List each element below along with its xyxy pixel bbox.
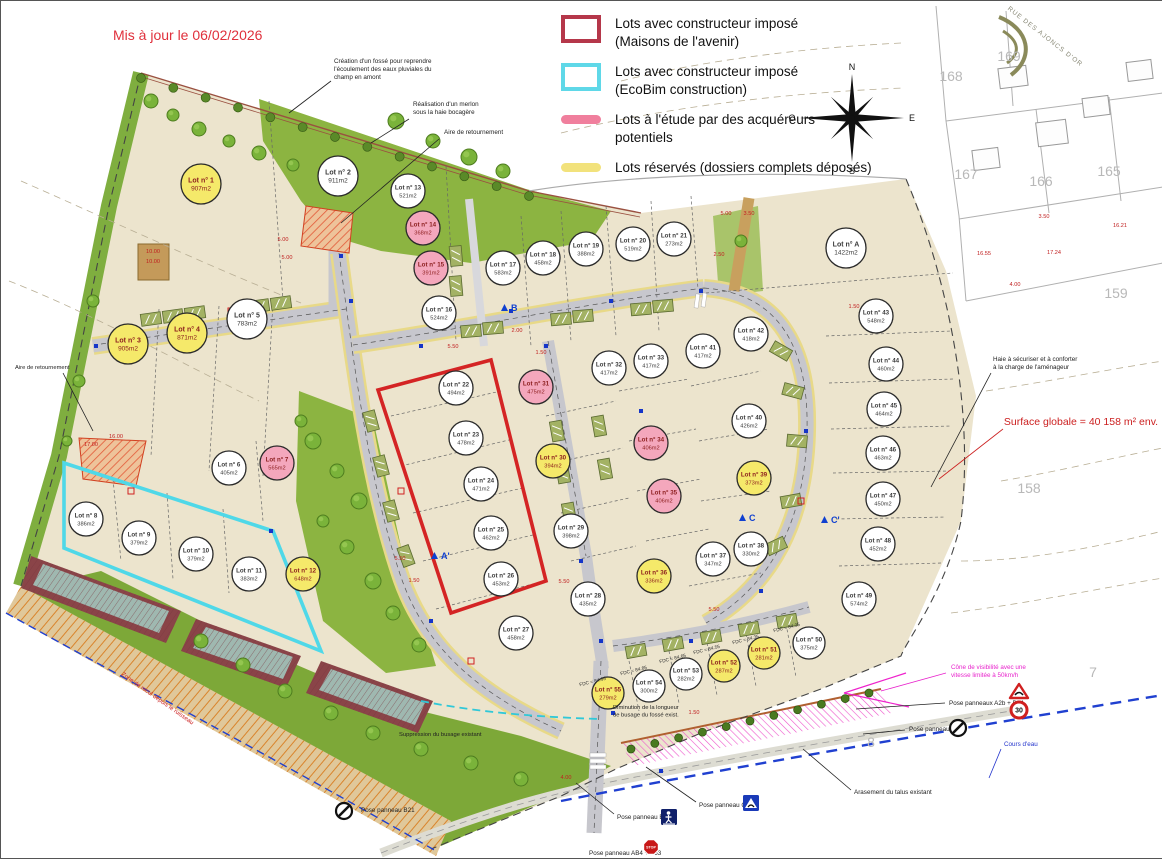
lot-marker: Lot n° 11383m2 [232,557,266,591]
svg-text:Cours d'eau: Cours d'eau [1004,741,1038,748]
hedge-dot [722,723,730,731]
svg-text:583m2: 583m2 [494,271,511,277]
tree [388,113,404,129]
lot-marker: Lot n° 35406m2 [647,479,681,513]
svg-text:426m2: 426m2 [740,424,757,430]
lot-marker: Lot n° 42418m2 [734,317,768,351]
svg-text:Lot n° 7: Lot n° 7 [266,457,289,464]
utility-marker [419,344,423,348]
hedge-dot [331,133,340,142]
svg-text:Lot n° 38: Lot n° 38 [738,543,765,550]
lot-marker: Lot n° 29398m2 [554,514,588,548]
dimension-label: 17.24 [1047,250,1061,256]
tree [252,146,266,160]
triangle-warning-sign-icon [1010,684,1028,698]
parcel-number: 8 [867,734,875,750]
legend-label: Lots à l'étude par des acquéreurs [615,112,815,127]
tree [324,706,338,720]
svg-text:Lot n° 50: Lot n° 50 [796,637,823,644]
lot-marker: Lot n° 39373m2 [737,461,771,495]
parcel-number: 7 [1089,664,1097,680]
hedge-dot [266,113,275,122]
legend-item-maisons-avenir: Lots avec constructeur imposé(Maisons de… [561,15,921,50]
svg-text:Lot n° 30: Lot n° 30 [540,455,567,462]
annotation: Suppression du busage existant [399,732,482,738]
lot-marker: Lot n° 1907m2 [181,164,221,204]
hedge-dot [698,728,706,736]
lot-marker: Lot n° 52287m2 [708,650,740,682]
no-entry-sign-icon [950,720,966,736]
utility-marker [269,529,273,533]
svg-text:Lot n° 36: Lot n° 36 [641,570,668,577]
svg-text:Lot n° 21: Lot n° 21 [661,233,688,240]
svg-text:648m2: 648m2 [294,577,311,583]
no-entry-sign-icon [336,803,352,819]
svg-text:Haie à sécuriser et à conforte: Haie à sécuriser et à conforter [993,356,1077,363]
lot-marker: Lot n° 4871m2 [167,313,207,353]
lot-marker: Lot n° 51281m2 [748,637,780,669]
utility-marker [759,589,763,593]
tree [414,742,428,756]
svg-text:Réalisation d'un merlon: Réalisation d'un merlon [413,101,479,108]
utility-marker [339,254,343,258]
svg-text:273m2: 273m2 [665,242,682,248]
svg-text:Lot n° 27: Lot n° 27 [503,627,530,634]
tree [194,634,208,648]
hedge-dot [298,123,307,132]
svg-text:Création d'un fossé pour repre: Création d'un fossé pour reprendre [334,58,432,65]
hedge-dot [460,172,469,181]
utility-marker [659,769,663,773]
svg-text:Lot n° A: Lot n° A [833,241,860,249]
annotation: Cône de visibilité avec unevitesse limit… [881,664,1026,691]
svg-text:417m2: 417m2 [694,354,711,360]
dimension-label: 5.00 [721,211,732,217]
utility-marker [689,639,693,643]
utility-marker [579,559,583,563]
legend-label: Lots avec constructeur imposé [615,16,798,31]
svg-text:l'écoulement des eaux pluviale: l'écoulement des eaux pluviales du [334,66,432,73]
svg-text:405m2: 405m2 [220,471,237,477]
dimension-label: 1.50 [409,578,420,584]
parking-bay [483,321,504,335]
svg-text:Lot n° 17: Lot n° 17 [490,262,517,269]
svg-text:Lot n° 31: Lot n° 31 [523,381,550,388]
hedge-dot [363,142,372,151]
lot-marker: Lot n° 19388m2 [569,232,603,266]
svg-text:à la charge de l'aménageur: à la charge de l'aménageur [993,364,1069,371]
svg-text:Lot n° 55: Lot n° 55 [595,687,622,694]
svg-text:champ en amont: champ en amont [334,74,381,81]
hedge-dot [395,152,404,161]
svg-text:Lot n° 42: Lot n° 42 [738,328,765,335]
svg-text:871m2: 871m2 [177,335,197,342]
dimension-label: 5.50 [395,556,406,562]
speed-limit-sign-icon: 30 [1011,702,1027,718]
svg-text:478m2: 478m2 [457,441,474,447]
lot-marker: Lot n° 38330m2 [734,532,768,566]
svg-text:300m2: 300m2 [640,689,657,695]
parking-bay [551,312,572,326]
tree [295,415,307,427]
lot-marker: Lot n° 25462m2 [474,516,508,550]
svg-text:Lot n° 24: Lot n° 24 [468,478,495,485]
svg-text:Lot n° 9: Lot n° 9 [128,532,151,539]
svg-text:Lot n° 8: Lot n° 8 [75,513,98,520]
tree [62,436,72,446]
svg-text:Lot n° 10: Lot n° 10 [183,548,210,555]
svg-text:Lot n° 5: Lot n° 5 [234,312,260,320]
tree [412,638,426,652]
svg-text:905m2: 905m2 [118,346,138,353]
legend-item-ecobim: Lots avec constructeur imposé(EcoBim con… [561,63,921,98]
svg-text:373m2: 373m2 [745,481,762,487]
svg-text:460m2: 460m2 [877,367,894,373]
legend-swatch-cyan-outline [561,63,601,91]
lot-marker: Lot n° 14368m2 [406,211,440,245]
dimension-label: 5.50 [559,579,570,585]
hedge-dot [651,739,659,747]
svg-text:Lot n° 40: Lot n° 40 [736,415,763,422]
turning-area-north-hatch [301,206,353,253]
hedge-dot [234,103,243,112]
svg-text:Lot n° 49: Lot n° 49 [846,593,873,600]
tree [73,375,85,387]
svg-text:281m2: 281m2 [755,656,772,662]
svg-text:565m2: 565m2 [268,466,285,472]
svg-text:494m2: 494m2 [447,391,464,397]
svg-text:Pose panneau B21: Pose panneau B21 [361,807,415,814]
hedge-dot [627,745,635,753]
hedge-dot [525,192,534,201]
svg-text:Lot n° 52: Lot n° 52 [711,660,738,667]
hedge-dot [428,162,437,171]
lot-marker: Lot n° 47450m2 [866,482,900,516]
svg-text:Lot n° 43: Lot n° 43 [863,310,890,317]
svg-text:Lot n° 2: Lot n° 2 [325,169,351,177]
parking-bay [449,276,463,297]
dimension-label: 1.50 [689,710,700,716]
lot-marker: Lot n° 6405m2 [212,451,246,485]
cadastre [936,6,1162,301]
svg-text:375m2: 375m2 [800,646,817,652]
svg-text:Lot n° 1: Lot n° 1 [188,177,214,185]
svg-text:Lot n° 33: Lot n° 33 [638,355,665,362]
parking-bay [461,324,482,338]
svg-text:Lot n° 32: Lot n° 32 [596,362,623,369]
lot-marker: Lot n° 8386m2 [69,502,103,536]
svg-text:907m2: 907m2 [191,186,211,193]
utility-marker [639,409,643,413]
dimension-label: 10.00 [146,259,160,265]
svg-text:386m2: 386m2 [77,522,94,528]
hedge-dot [492,182,501,191]
svg-text:Lot n° 14: Lot n° 14 [410,222,437,229]
svg-text:Lot n° 11: Lot n° 11 [236,568,262,575]
svg-text:287m2: 287m2 [715,669,732,675]
dimension-label: 5.50 [709,607,720,613]
svg-text:Lot n° 20: Lot n° 20 [620,238,647,245]
dimension-label: 17.00 [84,442,98,448]
tree [236,658,250,672]
svg-text:548m2: 548m2 [867,319,884,325]
site-plan-canvas: Lot n° 1907m2Lot n° 2911m2Lot n° 3905m2L… [0,0,1162,859]
hedge-dot [746,717,754,725]
utility-marker [544,344,548,348]
svg-text:471m2: 471m2 [472,487,489,493]
hedge-dot [137,74,146,83]
lot-marker: Lot n° 34406m2 [634,426,668,460]
svg-text:Lot n° 37: Lot n° 37 [700,553,727,560]
dimension-label: 5.00 [282,255,293,261]
svg-text:417m2: 417m2 [642,364,659,370]
svg-text:475m2: 475m2 [527,390,544,396]
lot-marker: Lot n° 9379m2 [122,521,156,555]
svg-text:911m2: 911m2 [328,178,348,185]
lot-marker: Lot n° 32417m2 [592,351,626,385]
parcel-number: 167 [954,166,978,182]
svg-text:282m2: 282m2 [677,677,694,683]
legend-swatch-red-outline [561,15,601,43]
hedge-dot [169,83,178,92]
svg-text:Lot n° 34: Lot n° 34 [638,437,665,444]
svg-text:Lot n° 26: Lot n° 26 [488,573,515,580]
tree [223,135,235,147]
svg-text:383m2: 383m2 [240,577,257,583]
svg-text:Lot n° 16: Lot n° 16 [426,307,453,314]
parking-bay [270,296,291,311]
utility-marker [804,429,808,433]
lot-marker: Lot n° 17583m2 [486,251,520,285]
svg-text:Lot n° 13: Lot n° 13 [395,185,422,192]
svg-text:Lot n° 47: Lot n° 47 [870,493,897,500]
hedge-dot [794,706,802,714]
legend-label: Lots réservés (dossiers complets déposés… [615,160,872,175]
lot-marker: Lot n° 10379m2 [179,537,213,571]
lot-marker: Lot n° 48452m2 [861,527,895,561]
parking-bay [631,302,652,316]
lot-marker: Lot n° 23478m2 [449,421,483,455]
hedge-dot [817,700,825,708]
lot-marker: Lot n° 12648m2 [286,557,320,591]
parcel-number: 168 [939,68,963,84]
tree [167,109,179,121]
svg-text:Lot n° 29: Lot n° 29 [558,525,585,532]
svg-text:279m2: 279m2 [599,696,616,702]
dimension-label: 1.50 [849,304,860,310]
annotation: Cours d'eau [989,741,1038,778]
lot-marker: Lot n° 22494m2 [439,371,473,405]
svg-text:Lot n° 3: Lot n° 3 [115,337,141,345]
lot-marker: Lot n° 20519m2 [616,227,650,261]
legend-label: Lots avec constructeur imposé [615,64,798,79]
svg-text:435m2: 435m2 [579,602,596,608]
dimension-label: 10.00 [146,249,160,255]
svg-text:Arasement du talus existant: Arasement du talus existant [854,789,932,796]
svg-text:450m2: 450m2 [874,502,891,508]
dimension-label: 2.00 [512,328,523,334]
parking-bay [573,309,594,323]
hedge-dot [770,711,778,719]
speed-hump-sign-icon [743,795,759,811]
svg-text:Lot n° 41: Lot n° 41 [690,345,717,352]
tree [192,122,206,136]
lot-marker: Lot n° 40426m2 [732,404,766,438]
lot-marker: Lot n° 21273m2 [657,222,691,256]
lot-marker: Lot n° 41417m2 [686,334,720,368]
annotation: Diminution de la longueurde busage du fo… [613,705,679,718]
lot-marker: Lot n° 16524m2 [422,296,456,330]
dimension-label: 2.50 [714,252,725,258]
svg-text:524m2: 524m2 [430,316,447,322]
svg-text:Lot n° 54: Lot n° 54 [636,680,663,687]
pedestrian-sign-icon [661,809,677,825]
hedge-dot [675,734,683,742]
legend-swatch-pink-blob [561,115,601,124]
lot-marker: Lot n° 24471m2 [464,467,498,501]
svg-text:Lot n° 53: Lot n° 53 [673,668,700,675]
updated-date: Mis à jour le 06/02/2026 [113,27,262,43]
svg-text:388m2: 388m2 [577,252,594,258]
svg-text:519m2: 519m2 [624,247,641,253]
svg-text:347m2: 347m2 [704,562,721,568]
svg-text:STOP: STOP [646,846,656,850]
dimension-label: 4.00 [561,775,572,781]
utility-marker [609,299,613,303]
svg-text:vitesse limitée à 50km/h: vitesse limitée à 50km/h [951,672,1019,679]
legend-item-etude: Lots à l'étude par des acquéreurspotenti… [561,111,921,146]
tree [496,164,510,178]
svg-text:Lot n° 48: Lot n° 48 [865,538,892,545]
svg-text:Lot n° 19: Lot n° 19 [573,243,600,250]
svg-text:Lot n° 25: Lot n° 25 [478,527,505,534]
parking-bay [140,312,161,327]
legend: Lots avec constructeur imposé(Maisons de… [561,15,921,177]
svg-text:Lot n° 35: Lot n° 35 [651,490,678,497]
tree [330,464,344,478]
svg-text:Lot n° 12: Lot n° 12 [290,568,317,575]
tree [366,726,380,740]
dimension-label: 1.50 [536,350,547,356]
dimension-label: 5.50 [448,344,459,350]
hedge-dot [201,93,210,102]
dimension-label: 16.21 [1113,223,1127,229]
utility-marker [349,299,353,303]
tree [735,235,747,247]
parking-bay [787,434,808,448]
dimension-label: 5.00 [278,237,289,243]
legend-swatch-yellow-blob [561,163,601,172]
lot-marker: Lot n° 37347m2 [696,542,730,576]
tree [287,159,299,171]
svg-text:574m2: 574m2 [850,602,867,608]
svg-text:521m2: 521m2 [399,194,416,200]
svg-text:Cône de visibilité avec une: Cône de visibilité avec une [951,664,1026,671]
lot-marker: Lot n° 30394m2 [536,444,570,478]
tree [340,540,354,554]
tree [464,756,478,770]
svg-text:783m2: 783m2 [237,321,257,328]
lot-marker: Lot n° 36336m2 [637,559,671,593]
parcel-number: 165 [1097,163,1121,179]
annotation: Création d'un fossé pour reprendrel'écou… [289,58,432,113]
legend-item-reserves: Lots réservés (dossiers complets déposés… [561,159,921,177]
lot-marker: Lot n° 43548m2 [859,299,893,333]
lot-marker: Lot n° 7565m2 [260,446,294,480]
parcel-number: 169 [997,48,1021,64]
svg-text:394m2: 394m2 [544,464,561,470]
tree [305,433,321,449]
utility-marker [599,639,603,643]
svg-text:Lot n° 22: Lot n° 22 [443,382,470,389]
lot-marker: Lot n° 2911m2 [318,156,358,196]
lot-marker: Lot n° 46463m2 [866,436,900,470]
svg-text:sous la haie bocagère: sous la haie bocagère [413,109,475,116]
svg-text:A': A' [441,551,450,561]
svg-text:Diminution de la longueur: Diminution de la longueur [613,705,679,711]
svg-text:Lot n° 39: Lot n° 39 [741,472,768,479]
parcel-number: 166 [1029,173,1053,189]
svg-text:B: B [511,303,518,313]
parking-bay [653,299,674,313]
lot-marker: Lot n° 28435m2 [571,582,605,616]
svg-text:452m2: 452m2 [869,547,886,553]
lot-marker: Lot n° 18458m2 [526,241,560,275]
svg-text:Lot n° 4: Lot n° 4 [174,326,200,334]
utility-marker [429,619,433,623]
lot-marker: Lot n° 45464m2 [867,392,901,426]
svg-text:391m2: 391m2 [422,271,439,277]
svg-text:Suppression du busage existant: Suppression du busage existant [399,732,482,738]
lot-marker: Lot n° 33417m2 [634,344,668,378]
svg-text:Aire de retournement: Aire de retournement [15,365,70,371]
svg-text:464m2: 464m2 [875,412,892,418]
svg-text:458m2: 458m2 [534,261,551,267]
svg-text:1422m2: 1422m2 [834,250,858,257]
svg-text:Lot n° 6: Lot n° 6 [218,462,241,469]
svg-text:418m2: 418m2 [742,337,759,343]
svg-text:Lot n° 46: Lot n° 46 [870,447,897,454]
tree [278,684,292,698]
tree [351,493,367,509]
tree [144,94,158,108]
hedge-dot [865,689,873,697]
svg-text:379m2: 379m2 [130,541,147,547]
dimension-label: 4.00 [1010,282,1021,288]
lot-marker: Lot n° A1422m2 [826,228,866,268]
svg-text:Lot n° 45: Lot n° 45 [871,403,898,410]
legend-label: (Maisons de l'avenir) [615,34,739,49]
svg-text:458m2: 458m2 [507,636,524,642]
svg-text:453m2: 453m2 [492,582,509,588]
annotation: Pose panneau B21 [361,807,415,814]
legend-label: potentiels [615,130,673,145]
lot-marker: Lot n° 53282m2 [670,658,702,690]
svg-text:Lot n° 28: Lot n° 28 [575,593,602,600]
dimension-label: 3.50 [1039,214,1050,220]
dimension-label: 16.00 [109,434,123,440]
svg-text:330m2: 330m2 [742,552,759,558]
tree [386,606,400,620]
parking-bay [449,246,463,267]
lot-marker: Lot n° 50375m2 [793,627,825,659]
svg-text:C: C [749,513,756,523]
annotation: Réalisation d'un merlonsous la haie boca… [371,101,479,143]
tree [317,515,329,527]
svg-text:C': C' [831,515,840,525]
lot-marker: Lot n° 54300m2 [633,670,665,702]
svg-text:462m2: 462m2 [482,536,499,542]
